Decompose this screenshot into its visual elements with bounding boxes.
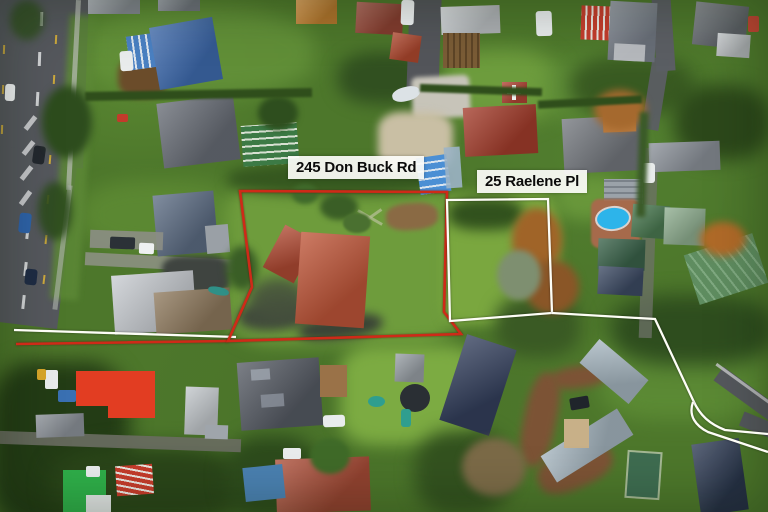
white-parcel-boundary: [447, 199, 552, 321]
white-access-line-2: [691, 402, 768, 452]
red-parcel-boundary: [228, 191, 461, 341]
red-access-line: [16, 341, 228, 344]
boundary-overlay: [0, 0, 768, 512]
aerial-photo: 245 Don Buck Rd 25 Raelene Pl: [0, 0, 768, 512]
white-access-line-1: [552, 313, 768, 434]
white-left-boundary-line: [14, 330, 236, 337]
address-label-245-don-buck-rd: 245 Don Buck Rd: [288, 156, 424, 179]
address-label-25-raelene-pl: 25 Raelene Pl: [477, 170, 587, 193]
